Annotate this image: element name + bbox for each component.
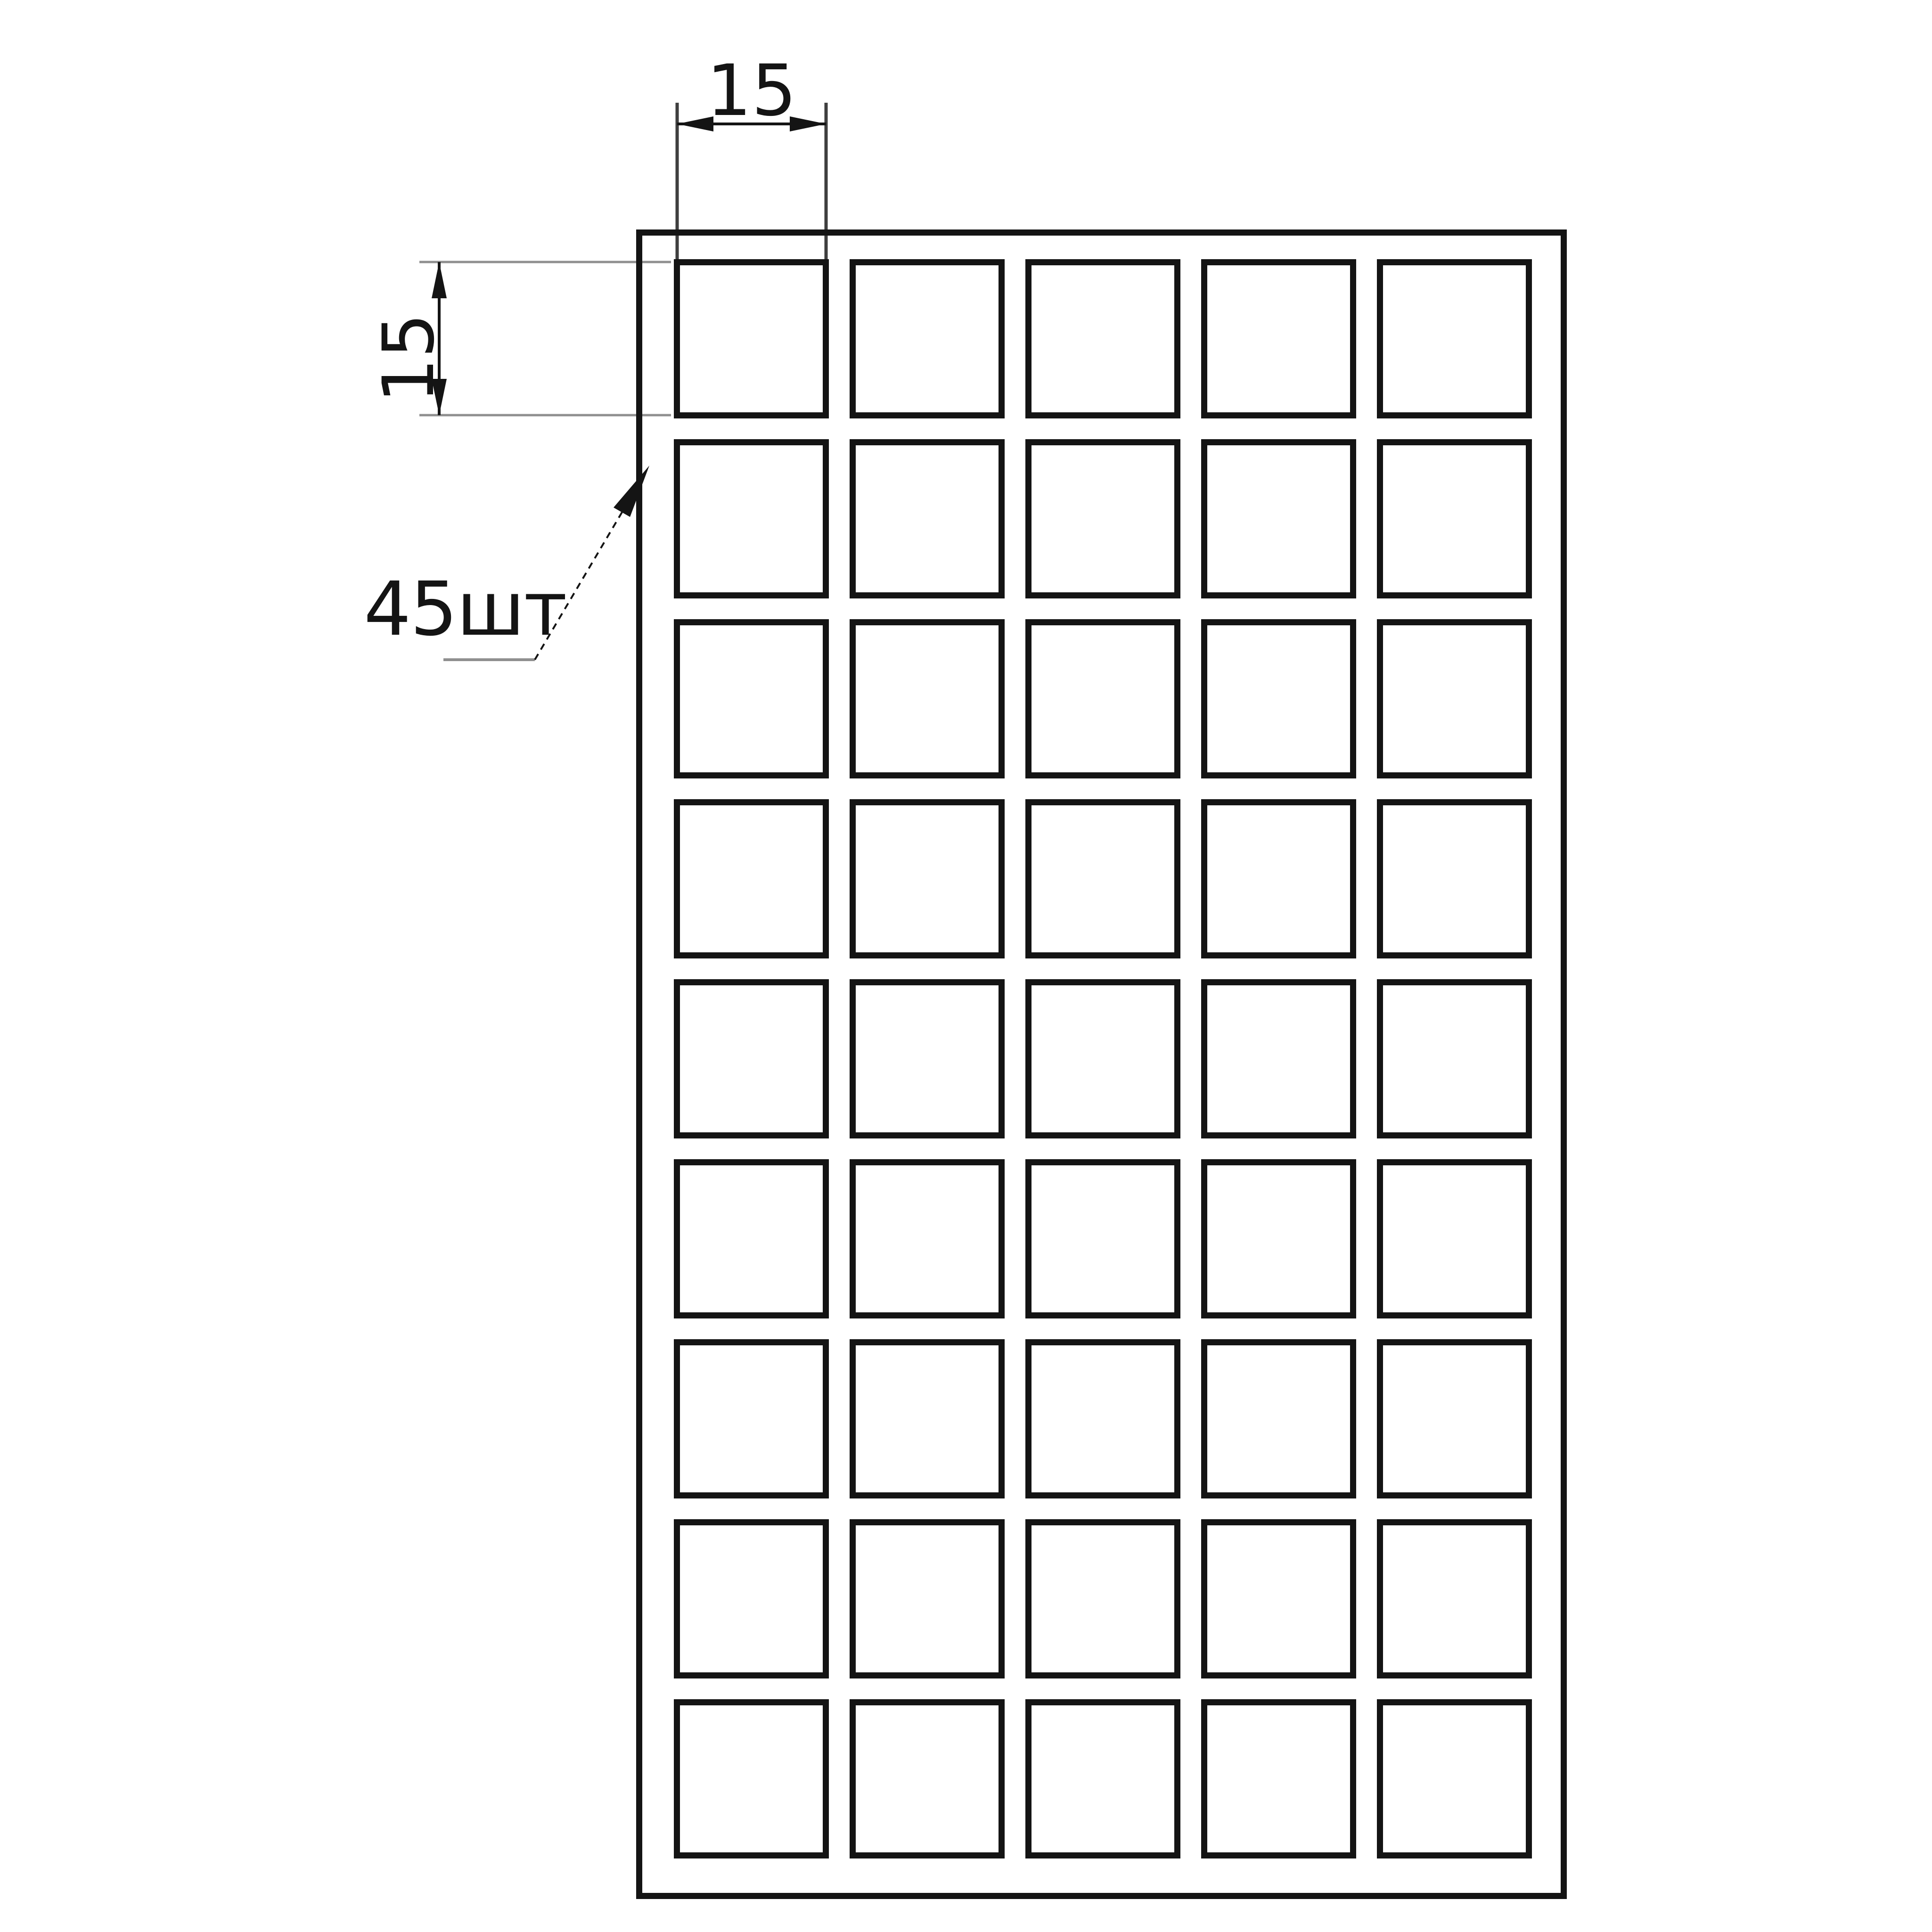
grid-cell — [1377, 1339, 1532, 1498]
grid-cell — [1025, 1159, 1180, 1318]
grid-cell — [674, 979, 829, 1138]
drawing-canvas: 15 15 45шт — [0, 0, 1932, 1932]
grid-cell — [1201, 619, 1356, 778]
grid-cell — [1201, 439, 1356, 598]
cell-grid — [642, 236, 1561, 1893]
grid-cell — [850, 1339, 1005, 1498]
grid-cell — [674, 1699, 829, 1858]
grid-cell — [1377, 799, 1532, 958]
grid-cell — [1377, 1699, 1532, 1858]
grid-cell — [1025, 799, 1180, 958]
grid-cell — [1025, 1699, 1180, 1858]
grid-cell — [1201, 799, 1356, 958]
grid-cell — [674, 259, 829, 418]
grid-cell — [674, 439, 829, 598]
grid-cell — [1201, 1159, 1356, 1318]
grid-cell — [850, 259, 1005, 418]
grid-cell — [1201, 259, 1356, 418]
left-dim-arrow-top-icon — [432, 262, 447, 298]
top-dimension-label: 15 — [677, 56, 826, 126]
grid-cell — [1201, 979, 1356, 1138]
grid-cell — [1201, 1699, 1356, 1858]
grid-cell — [1377, 619, 1532, 778]
grid-cell — [674, 799, 829, 958]
grid-cell — [850, 619, 1005, 778]
grid-cell — [1201, 1519, 1356, 1678]
grid-cell — [1377, 1159, 1532, 1318]
quantity-callout-label: 45шт — [364, 572, 566, 647]
sheet-outline — [636, 229, 1567, 1899]
grid-cell — [850, 1519, 1005, 1678]
grid-cell — [674, 1339, 829, 1498]
grid-cell — [850, 979, 1005, 1138]
grid-cell — [1025, 1339, 1180, 1498]
grid-cell — [1377, 439, 1532, 598]
grid-cell — [1377, 979, 1532, 1138]
grid-cell — [850, 1699, 1005, 1858]
grid-cell — [850, 799, 1005, 958]
grid-cell — [1377, 259, 1532, 418]
grid-cell — [674, 619, 829, 778]
grid-cell — [1025, 259, 1180, 418]
left-dimension-label: 15 — [374, 313, 444, 403]
grid-cell — [674, 1519, 829, 1678]
grid-cell — [850, 439, 1005, 598]
grid-cell — [1025, 1519, 1180, 1678]
grid-cell — [1201, 1339, 1356, 1498]
grid-cell — [674, 1159, 829, 1318]
grid-cell — [850, 1159, 1005, 1318]
grid-cell — [1025, 439, 1180, 598]
grid-cell — [1025, 979, 1180, 1138]
grid-cell — [1377, 1519, 1532, 1678]
grid-cell — [1025, 619, 1180, 778]
